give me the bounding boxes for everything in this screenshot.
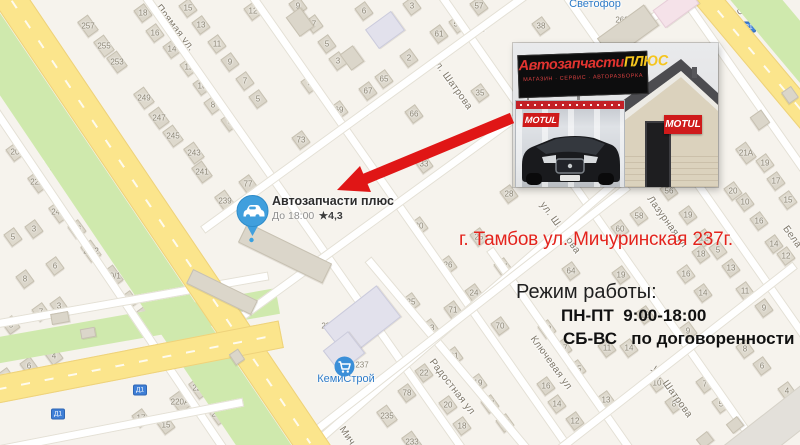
house-number: 66 <box>410 110 419 119</box>
house-number: 16 <box>755 217 764 226</box>
address-text: г. Тамбов ул. Мичуринская 237г. <box>459 229 733 251</box>
house-number: 10 <box>741 198 750 207</box>
house-number: 235 <box>380 412 393 421</box>
photo-sign-board: АвтозапчастиПЛЮС МАГАЗИН · СЕРВИС · АВТО… <box>517 51 648 99</box>
house-number: 245 <box>166 132 179 141</box>
map-canvas[interactable]: 2572552532492472451816141210861513119751… <box>0 0 800 445</box>
house-number: 3 <box>336 57 340 66</box>
photo-sign-text: Автозапчасти <box>518 55 624 75</box>
photo-motul-banner: MOTUL <box>515 100 625 187</box>
house-number: 14 <box>553 400 562 409</box>
marker-title: Автозапчасти плюс <box>272 194 394 208</box>
star-icon: ★ <box>319 210 328 222</box>
house-number: 16 <box>151 29 160 38</box>
poi-svetofor[interactable]: Светофор <box>569 0 621 10</box>
photo-motul-logo: MOTUL <box>523 113 560 127</box>
house-number: 16 <box>682 270 691 279</box>
house-number: 22 <box>420 369 429 378</box>
photo-sign-accent: ПЛЮС <box>624 53 669 71</box>
house-number: 15 <box>184 4 193 13</box>
house-number: 56 <box>665 187 674 196</box>
house-number: 233 <box>405 438 418 445</box>
house-number: 20 <box>729 187 738 196</box>
photo-car <box>516 125 624 187</box>
house-number: 28 <box>505 190 514 199</box>
house-number: 3 <box>32 225 36 234</box>
house-number: 5 <box>325 40 329 49</box>
house-number: 2 <box>407 54 411 63</box>
house-number: 13 <box>197 21 206 30</box>
house-number: 237 <box>355 361 368 370</box>
house-number: 6 <box>53 262 57 271</box>
house-number: 11 <box>741 287 749 296</box>
house-number: 17 <box>772 177 781 186</box>
house-number: 14 <box>770 240 779 249</box>
house-number: 67 <box>364 87 373 96</box>
house-number: 12 <box>782 252 791 261</box>
house-number: 61 <box>435 30 444 39</box>
schedule-title: Режим работы: <box>516 281 657 304</box>
house-number: 35 <box>476 89 485 98</box>
house-number: 243 <box>187 149 200 158</box>
house-number: 14 <box>699 289 708 298</box>
storefront-photo: АвтозапчастиПЛЮС МАГАЗИН · СЕРВИС · АВТО… <box>513 43 718 187</box>
marker-hours: До 18:00 <box>272 210 314 222</box>
house-number: 255 <box>97 42 110 51</box>
house-number: 16 <box>542 382 551 391</box>
house-number: 58 <box>635 212 644 221</box>
house-number: 20 <box>444 401 453 410</box>
house-number: 64 <box>567 267 576 276</box>
road-badge: Д1 <box>51 409 65 420</box>
house-number: 6 <box>760 362 764 371</box>
photo-motul-sign: MOTUL <box>664 115 702 134</box>
house-number: 9 <box>762 304 766 313</box>
house-number: 249 <box>137 94 150 103</box>
house-number: 12 <box>571 417 580 426</box>
house-number: 19 <box>684 211 693 220</box>
shopping-cart-icon[interactable] <box>334 356 355 377</box>
house-number: 257 <box>81 22 94 31</box>
house-number: 8 <box>23 275 27 284</box>
house-number: 38 <box>537 22 546 31</box>
marker-label[interactable]: Автозапчасти плюс До 18:00 ★4,3 <box>272 194 394 223</box>
house-number: 57 <box>475 2 484 11</box>
schedule-weekdays: ПН-ПТ 9:00-18:00 <box>561 306 706 326</box>
house-number: 9 <box>228 58 232 67</box>
photo-banner-stripe <box>516 101 624 109</box>
house-number: 65 <box>380 75 389 84</box>
house-number: 78 <box>403 389 412 398</box>
house-number: 11 <box>213 40 221 49</box>
marker-rating: 4,3 <box>328 210 343 222</box>
house-number: 7 <box>243 77 247 86</box>
road-badge: Д1 <box>133 385 147 396</box>
house-number: 5 <box>11 233 15 242</box>
house-number: 5 <box>256 95 260 104</box>
house-number: 19 <box>617 271 626 280</box>
house-number: 18 <box>139 9 148 18</box>
house-number: 6 <box>362 7 366 16</box>
house-number: 253 <box>110 58 123 67</box>
house-number: 33 <box>420 160 429 169</box>
house-number: 18 <box>458 422 467 431</box>
map-pin-icon[interactable] <box>231 190 275 244</box>
house-number: 13 <box>727 264 736 273</box>
house-number: 3 <box>410 2 414 11</box>
house-number: 21А <box>739 149 753 158</box>
house-number: 241 <box>195 168 208 177</box>
house-number: 77 <box>244 180 253 189</box>
house-number: 73 <box>297 136 306 145</box>
house-number: 247 <box>152 114 165 123</box>
house-number: 15 <box>784 196 793 205</box>
schedule-weekend: СБ-ВС по договоренности <box>563 329 794 349</box>
house-number: 70 <box>496 322 505 331</box>
house-number: 19 <box>761 159 770 168</box>
